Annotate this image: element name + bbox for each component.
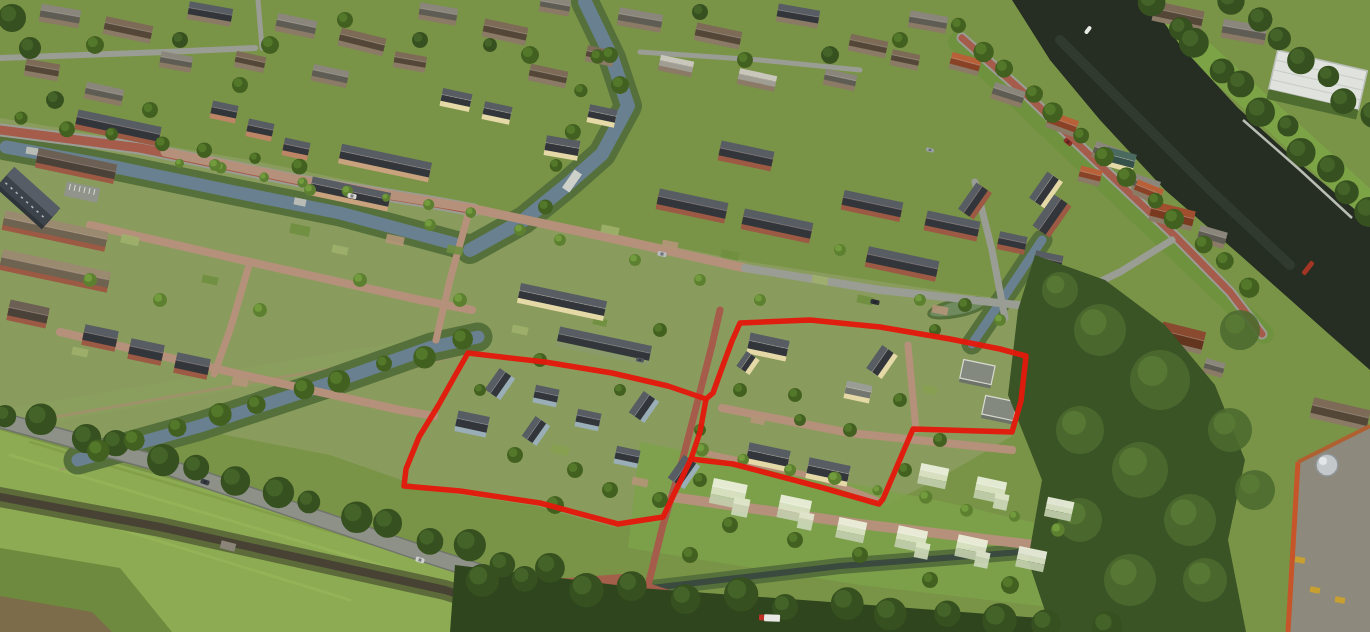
- woods-canopy-light: [1119, 448, 1147, 476]
- tree-highlight: [1095, 614, 1112, 631]
- tree-highlight: [296, 380, 307, 391]
- tree-highlight: [484, 39, 492, 47]
- tree-highlight: [170, 420, 180, 430]
- tree-highlight: [1212, 60, 1226, 74]
- tree-highlight: [266, 479, 283, 496]
- tree-highlight: [775, 596, 789, 610]
- tree-highlight: [613, 77, 623, 87]
- tree-highlight: [1251, 9, 1264, 22]
- tree-highlight: [260, 173, 265, 178]
- tree-highlight: [995, 315, 1002, 322]
- tree-highlight: [630, 255, 637, 262]
- car-windshield: [350, 194, 354, 198]
- tree-highlight: [300, 492, 313, 505]
- tree-highlight: [224, 469, 240, 485]
- tree-highlight: [186, 457, 200, 471]
- tree-highlight: [515, 225, 522, 232]
- tree-highlight: [1270, 29, 1283, 42]
- woods-canopy-light: [1171, 499, 1197, 525]
- tree-highlight: [16, 112, 23, 119]
- tree-highlight: [1320, 157, 1335, 172]
- tree-highlight: [1096, 148, 1107, 159]
- tree-highlight: [1172, 19, 1185, 32]
- tree-highlight: [569, 463, 578, 472]
- tree-highlight: [354, 274, 362, 282]
- woods-canopy-light: [1225, 314, 1245, 334]
- tree-highlight: [930, 325, 937, 332]
- tree-highlight: [1075, 129, 1084, 138]
- tree-highlight: [1052, 524, 1060, 532]
- tree-highlight: [684, 548, 693, 557]
- tree-highlight: [339, 13, 348, 22]
- tree-highlight: [694, 474, 702, 482]
- woods-canopy-light: [1062, 411, 1086, 435]
- woods-canopy-light: [1111, 559, 1137, 585]
- tree-highlight: [1197, 237, 1207, 247]
- tree-highlight: [61, 122, 70, 131]
- tree-highlight: [416, 348, 428, 360]
- tree-highlight: [1, 6, 16, 21]
- tree-highlight: [21, 39, 33, 51]
- tree-highlight: [1149, 194, 1158, 203]
- tree-highlight: [829, 472, 837, 480]
- tree-highlight: [1230, 72, 1245, 87]
- tree-highlight: [48, 92, 58, 102]
- tree-highlight: [383, 194, 388, 199]
- tree-highlight: [921, 492, 928, 499]
- tree-highlight: [414, 33, 423, 42]
- tree-highlight: [1010, 512, 1016, 518]
- tree-highlight: [1034, 612, 1050, 628]
- tree-highlight: [952, 19, 960, 27]
- tree-highlight: [376, 511, 392, 527]
- tree-highlight: [959, 299, 967, 307]
- tree-highlight: [75, 426, 91, 442]
- tree-highlight: [150, 446, 168, 464]
- tree-highlight: [425, 220, 432, 227]
- tree-highlight: [211, 405, 224, 418]
- car-windshield: [873, 300, 877, 304]
- tree-highlight: [1166, 210, 1177, 221]
- tree-highlight: [234, 78, 243, 87]
- tree-highlight: [695, 275, 702, 282]
- tree-highlight: [509, 448, 518, 457]
- tree-highlight: [823, 47, 833, 57]
- tree-highlight: [1280, 117, 1292, 129]
- silo-highlight: [1319, 457, 1327, 465]
- tree-highlight: [88, 37, 98, 47]
- car-windshield: [660, 252, 664, 256]
- tree-highlight: [1249, 100, 1265, 116]
- tree-highlight: [724, 518, 733, 527]
- tree-highlight: [424, 200, 430, 206]
- tree-highlight: [1289, 140, 1305, 156]
- tree-highlight: [592, 50, 600, 58]
- tree-highlight: [419, 530, 434, 545]
- tree-highlight: [523, 47, 533, 57]
- tree-highlight: [615, 385, 622, 392]
- woods-canopy-light: [1189, 562, 1211, 584]
- tree-highlight: [492, 554, 506, 568]
- tree-highlight: [854, 548, 863, 557]
- tree-highlight: [899, 464, 907, 472]
- tree-highlight: [975, 43, 986, 54]
- tree-highlight: [937, 603, 951, 617]
- tree-highlight: [789, 389, 797, 397]
- tree-highlight: [538, 555, 554, 571]
- tree-highlight: [654, 493, 663, 502]
- tree-highlight: [566, 125, 575, 134]
- tree-highlight: [1241, 279, 1252, 290]
- tree-highlight: [576, 85, 583, 92]
- tree-highlight: [467, 208, 473, 214]
- tree-highlight: [344, 504, 361, 521]
- truck-box: [764, 614, 780, 622]
- tree-highlight: [604, 483, 613, 492]
- tree-highlight: [176, 160, 181, 165]
- tree-highlight: [654, 324, 662, 332]
- tree-highlight: [738, 455, 744, 461]
- tree-highlight: [1320, 67, 1332, 79]
- tree-highlight: [997, 61, 1007, 71]
- tree-highlight: [1218, 253, 1228, 263]
- tree-highlight: [210, 160, 217, 167]
- tree-highlight: [894, 394, 902, 402]
- woods-canopy-light: [1047, 276, 1065, 294]
- tree-highlight: [174, 33, 183, 42]
- tree-highlight: [1027, 86, 1037, 96]
- tree-highlight: [934, 434, 942, 442]
- aerial-photo: [0, 0, 1370, 632]
- tree-highlight: [28, 406, 45, 423]
- tree-highlight: [674, 586, 690, 602]
- tree-highlight: [877, 600, 895, 618]
- tree-highlight: [755, 295, 762, 302]
- tree-highlight: [144, 103, 153, 112]
- tree-highlight: [1333, 90, 1347, 104]
- tree-highlight: [961, 505, 968, 512]
- tree-highlight: [604, 48, 613, 57]
- tree-highlight: [475, 385, 482, 392]
- truck-cab: [759, 614, 764, 620]
- tree-highlight: [1044, 104, 1055, 115]
- tree-highlight: [834, 590, 852, 608]
- tree-highlight: [873, 486, 879, 492]
- tree-highlight: [555, 235, 562, 242]
- tree-highlight: [454, 294, 462, 302]
- tree-highlight: [739, 53, 748, 62]
- tree-highlight: [986, 606, 1005, 625]
- tree-highlight: [785, 465, 792, 472]
- tree-highlight: [514, 568, 528, 582]
- tree-highlight: [154, 294, 162, 302]
- tree-highlight: [539, 201, 547, 209]
- tree-highlight: [1337, 182, 1350, 195]
- tree-highlight: [1290, 49, 1305, 64]
- tree-highlight: [1119, 169, 1130, 180]
- tree-highlight: [250, 153, 256, 159]
- tree-highlight: [105, 432, 119, 446]
- tree-highlight: [156, 138, 164, 146]
- tree-highlight: [924, 573, 933, 582]
- woods-canopy-light: [1240, 474, 1260, 494]
- tree-highlight: [293, 160, 302, 169]
- tree-highlight: [727, 580, 746, 599]
- tree-highlight: [254, 304, 262, 312]
- tree-highlight: [107, 129, 114, 136]
- tree-highlight: [620, 573, 636, 589]
- tree-highlight: [89, 441, 101, 453]
- tree-highlight: [263, 37, 273, 47]
- tree-highlight: [915, 295, 922, 302]
- tree-highlight: [844, 424, 852, 432]
- tree-highlight: [1003, 577, 1013, 587]
- tree-highlight: [573, 576, 592, 595]
- aerial-photo-stage: [0, 0, 1370, 632]
- tree-highlight: [795, 415, 802, 422]
- tree-highlight: [789, 533, 798, 542]
- woods-canopy-light: [1214, 412, 1236, 434]
- woods-canopy-light: [1138, 356, 1168, 386]
- tree-highlight: [84, 274, 92, 282]
- tree-highlight: [249, 397, 259, 407]
- silo: [1316, 454, 1338, 476]
- tree-highlight: [378, 357, 387, 366]
- tree-highlight: [457, 531, 475, 549]
- tree-highlight: [330, 372, 342, 384]
- tree-highlight: [198, 144, 207, 153]
- tree-highlight: [454, 330, 465, 341]
- tree-highlight: [551, 160, 558, 167]
- tree-highlight: [835, 245, 842, 252]
- tree-highlight: [305, 185, 312, 192]
- tree-highlight: [694, 5, 703, 14]
- tree-highlight: [343, 186, 349, 192]
- tree-highlight: [469, 566, 487, 584]
- tree-highlight: [298, 178, 304, 184]
- tree-highlight: [734, 384, 742, 392]
- tree-highlight: [126, 431, 138, 443]
- tree-highlight: [1182, 30, 1198, 46]
- tree-highlight: [894, 33, 903, 42]
- woods-canopy-light: [1081, 309, 1107, 335]
